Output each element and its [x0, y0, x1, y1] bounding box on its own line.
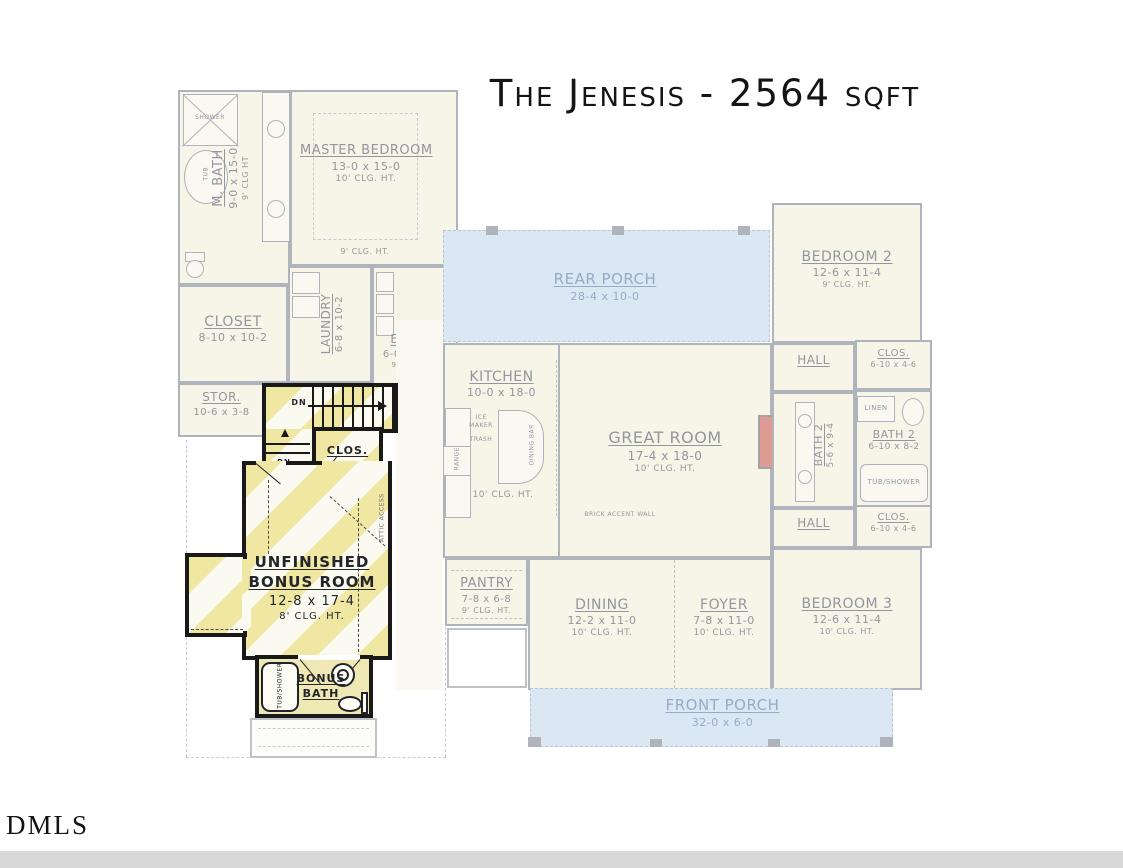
- bonus-room-ceiling: 8' CLG. HT.: [247, 610, 377, 624]
- bonus-closet-name: CLOS.: [314, 444, 381, 459]
- bonus-room-dims: 12-8 x 17-4: [247, 593, 377, 611]
- stairs-dn-label: DN: [290, 398, 308, 409]
- kneewall-dash-line: [191, 629, 243, 630]
- bonus-room-top-wall: [286, 461, 322, 465]
- kneewall-dash-line: [268, 480, 269, 554]
- bonus-room-bump-out: [185, 553, 247, 637]
- attic-access-label: ATTIC ACCESS: [378, 486, 386, 550]
- stairs-direction-arrow: [308, 405, 380, 407]
- bath-door-opening: [298, 655, 360, 660]
- bonus-tub-shower-label: TUB/SHOWER: [276, 663, 284, 709]
- bonus-closet-label: CLOS.: [314, 444, 381, 459]
- bonus-room-name-line1: UNFINISHED: [247, 552, 377, 572]
- floor-plan-image: The Jenesis - 2564 sqft SHOWER TUB M. BA…: [0, 0, 1123, 868]
- stairs-arrow-head: [378, 401, 387, 411]
- mls-watermark: DMLS: [6, 810, 89, 841]
- bonus-room-label: UNFINISHED BONUS ROOM 12-8 x 17-4 8' CLG…: [247, 552, 377, 624]
- bonus-bath-name-line2: BATH: [294, 687, 348, 702]
- bonus-toilet-tank: [361, 692, 368, 714]
- bonus-bath-name-line1: BONUS: [294, 672, 348, 687]
- bottom-edge-bar: [0, 851, 1123, 868]
- bonus-room-top-wall: [242, 461, 256, 465]
- landing-up-arrow: [281, 429, 289, 437]
- landing-treads: [266, 436, 310, 454]
- bonus-room-overlay: DN DN CLOS. ATTIC ACCESS UNFINISHED BONU…: [0, 0, 1123, 868]
- bonus-bath-label: BONUS BATH: [294, 672, 348, 702]
- bonus-room-name-line2: BONUS ROOM: [247, 572, 377, 592]
